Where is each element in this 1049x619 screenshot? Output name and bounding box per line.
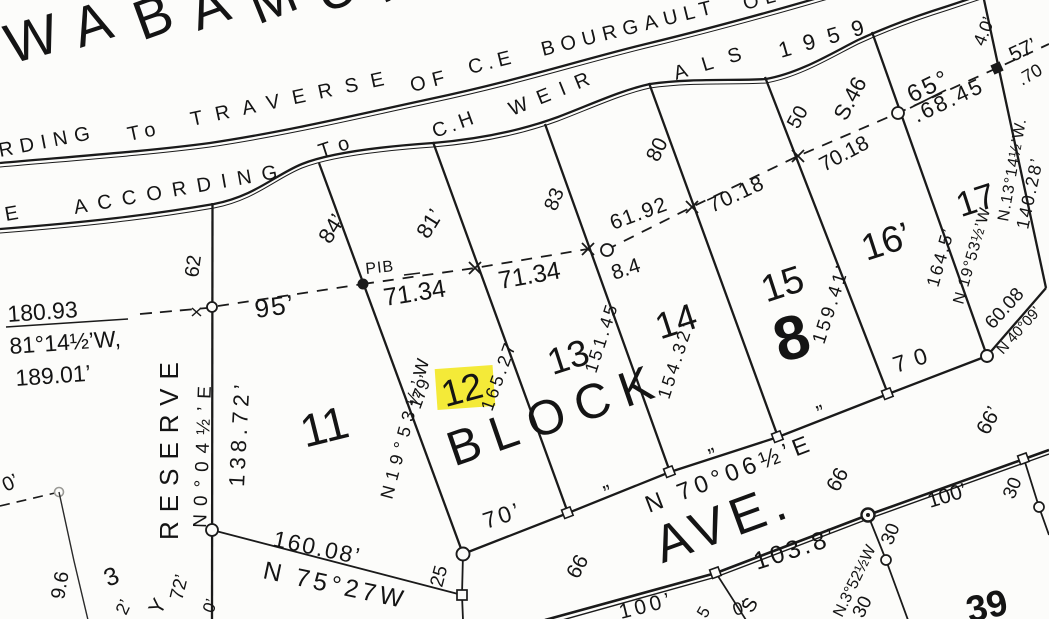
svg-text:PIB: PIB	[365, 258, 395, 278]
svg-text:189.01’: 189.01’	[15, 360, 92, 391]
svg-text:62: 62	[181, 254, 206, 279]
svg-text:RESERVE: RESERVE	[154, 353, 184, 540]
svg-text:95’: 95’	[253, 289, 297, 324]
